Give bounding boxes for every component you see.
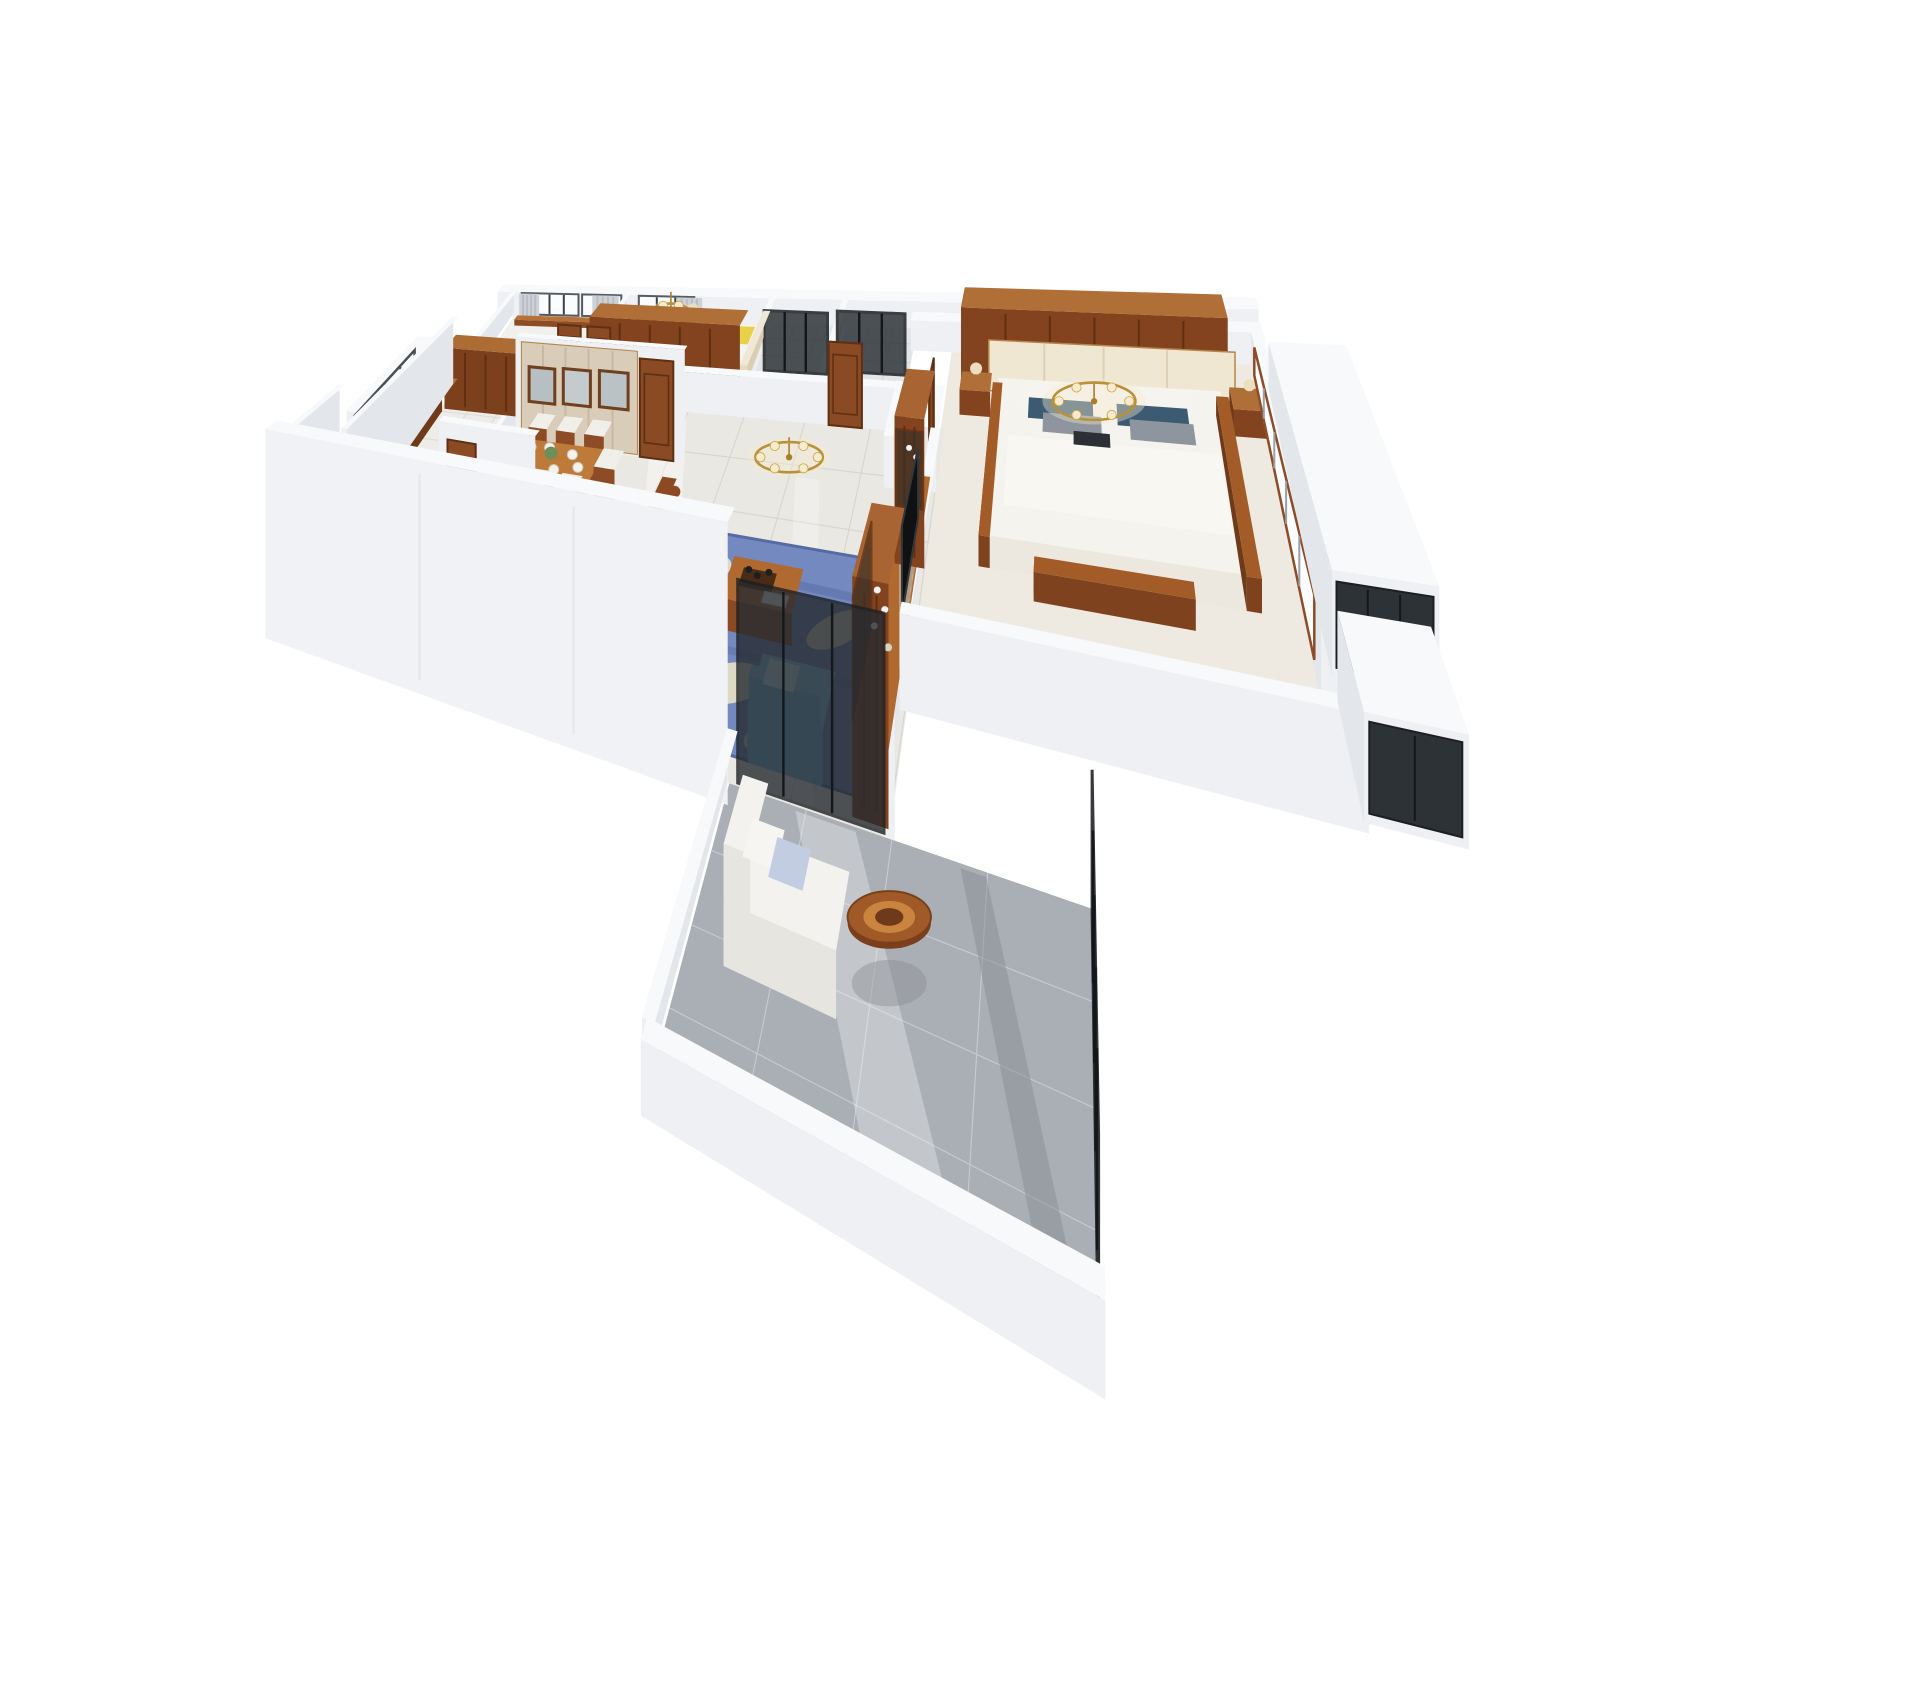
nightstand-master-left [960, 371, 992, 417]
shower-glass-left [764, 311, 827, 375]
art-frame-2 [563, 369, 590, 407]
dining-centerpiece [545, 447, 558, 460]
door-bathroom [829, 342, 862, 429]
curtain-bedroom2-left [519, 294, 539, 318]
art-frame-1 [529, 367, 555, 405]
apartment-3d-floorplan [0, 0, 1920, 1688]
lamp-master-right [1243, 379, 1255, 391]
door-dining-hall [640, 359, 674, 462]
floorplan-render-canvas [0, 0, 1920, 1688]
art-frame-3 [599, 371, 628, 410]
lamp-master-left [970, 362, 982, 374]
chandelier-master [1042, 378, 1145, 425]
